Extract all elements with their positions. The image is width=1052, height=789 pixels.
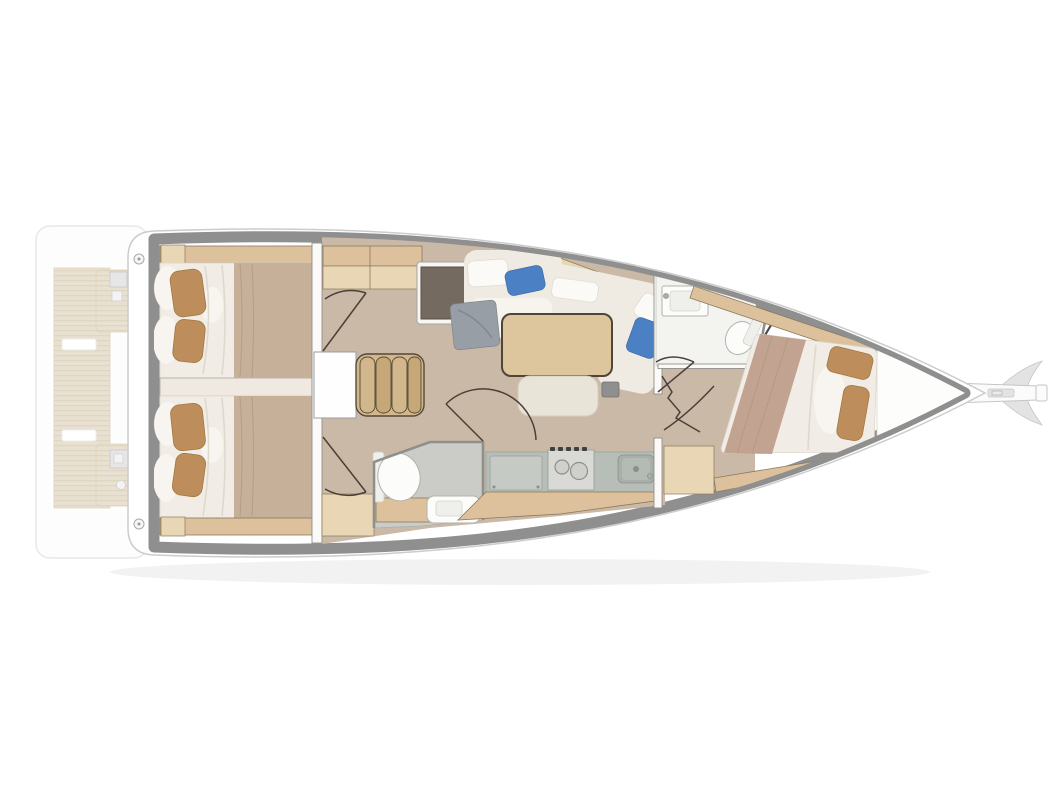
port-blanket bbox=[234, 263, 312, 378]
companionway-landing bbox=[314, 352, 356, 418]
fuel-cap bbox=[117, 481, 126, 490]
sofa-pillow-white-1 bbox=[467, 259, 509, 288]
floor-plan-canvas bbox=[0, 0, 1052, 789]
forward-bulkhead-lower bbox=[654, 438, 662, 508]
aft-vanity-basin bbox=[436, 501, 462, 516]
starboard-pillow-1 bbox=[170, 402, 207, 451]
sink-drain bbox=[633, 466, 639, 472]
forward-faucet bbox=[664, 294, 669, 299]
step-3 bbox=[392, 357, 407, 413]
salon-ottoman bbox=[518, 376, 598, 416]
salon-stool bbox=[602, 382, 619, 397]
cleat-port-pin bbox=[138, 258, 141, 261]
forward-head-aft-wall bbox=[658, 364, 758, 369]
stove-burner-1 bbox=[555, 460, 569, 474]
stove-knob bbox=[566, 447, 571, 451]
transom-fitting-starboard bbox=[114, 454, 123, 463]
anchor-roller-pin bbox=[992, 391, 1002, 395]
transom-locker-port bbox=[110, 272, 127, 287]
port-shelf-box bbox=[161, 245, 185, 264]
vestibule-cabinet-lower bbox=[322, 494, 374, 536]
salon-table bbox=[502, 314, 612, 376]
step-1 bbox=[360, 357, 375, 413]
bowsprit-tip bbox=[1036, 385, 1047, 401]
starboard-blanket bbox=[234, 396, 312, 518]
hull-shadow bbox=[110, 559, 930, 585]
stove-knob bbox=[574, 447, 579, 451]
deck-hatch-lower bbox=[62, 430, 96, 441]
transom-fitting-port bbox=[112, 291, 122, 301]
gray-throw-blanket bbox=[450, 300, 501, 351]
stove-knob bbox=[558, 447, 563, 451]
aft-cabin-divider bbox=[160, 378, 312, 396]
aft-cabin-port bbox=[153, 245, 312, 378]
bow-flare-port bbox=[1000, 361, 1042, 388]
forward-dresser bbox=[664, 446, 714, 494]
boat-floor-plan bbox=[0, 0, 1052, 789]
refrigerator-panel bbox=[490, 456, 542, 490]
bow-flare-starboard bbox=[1000, 398, 1042, 425]
port-pillow-2 bbox=[172, 319, 206, 364]
aft-cabin-starboard bbox=[153, 396, 312, 536]
panel-screw bbox=[493, 486, 496, 489]
aft-head-counter bbox=[376, 498, 430, 522]
vestibule-locker-upper bbox=[323, 246, 422, 266]
step-2 bbox=[376, 357, 391, 413]
deck-hatch-upper bbox=[62, 339, 96, 350]
stove-burner-2 bbox=[571, 463, 588, 480]
galley-faucet bbox=[648, 474, 653, 479]
stove-knob bbox=[582, 447, 587, 451]
starboard-shelf-box bbox=[161, 517, 185, 536]
panel-screw bbox=[537, 486, 540, 489]
cleat-starboard-pin bbox=[138, 523, 141, 526]
port-pillow-1 bbox=[169, 268, 207, 318]
vestibule-locker-lower bbox=[323, 266, 422, 289]
step-4 bbox=[408, 357, 421, 413]
stove-knob bbox=[550, 447, 555, 451]
starboard-pillow-2 bbox=[171, 452, 207, 498]
